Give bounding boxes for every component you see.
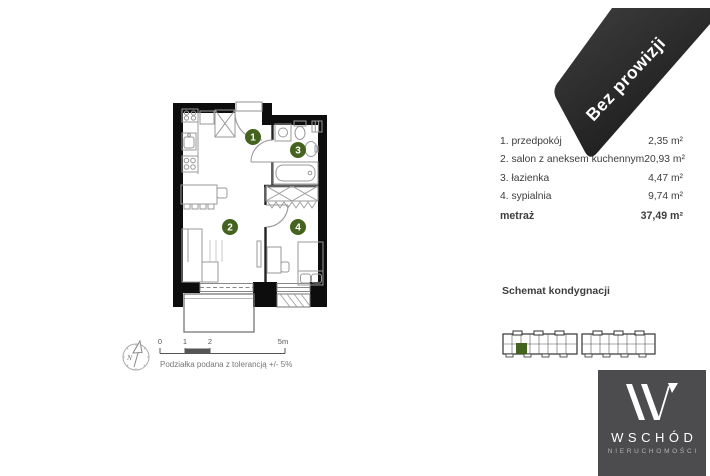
room-2-number: 2 bbox=[227, 223, 233, 234]
legend-row-3-value: 4,47 m² bbox=[648, 170, 683, 188]
bathtub-icon bbox=[273, 162, 318, 184]
entrance-door-leaf bbox=[236, 102, 262, 111]
balcony-hatch bbox=[280, 294, 310, 307]
schematic-title: Schemat kondygnacji bbox=[502, 285, 610, 297]
chair-icon bbox=[281, 262, 289, 272]
legend-total-row: metraż 37,49 m² bbox=[500, 207, 683, 225]
bedroom-furniture bbox=[266, 186, 323, 285]
compass-north-label: N bbox=[126, 353, 133, 362]
company-logo: WSCHÓD NIERUCHOMOŚCI bbox=[598, 370, 706, 476]
sofa-icon bbox=[182, 229, 218, 282]
legend-row-3-label: 3. łazienka bbox=[500, 170, 549, 188]
dining-table-icon bbox=[181, 185, 227, 209]
scale-tick-1: 1 bbox=[183, 337, 187, 346]
listing-floorplan-page: 1 2 3 4 N 0 1 2 5m bbox=[0, 0, 710, 476]
room-3-number: 3 bbox=[295, 146, 301, 157]
washing-machine-icon bbox=[275, 124, 291, 141]
legend-row-3: 3. łazienka 4,47 m² bbox=[500, 170, 683, 188]
floor-plan: 1 2 3 4 N 0 1 2 5m bbox=[0, 0, 400, 400]
legend-row-4-label: 4. sypialnia bbox=[500, 188, 552, 206]
desk-icon bbox=[267, 247, 281, 273]
room-4-number: 4 bbox=[295, 223, 301, 234]
tv-icon bbox=[257, 241, 261, 267]
bedroom-door-arc bbox=[266, 205, 288, 227]
highlighted-unit bbox=[516, 343, 527, 354]
building-left bbox=[503, 331, 577, 357]
livingroom-furniture bbox=[182, 229, 261, 282]
scale-tick-0: 0 bbox=[158, 337, 162, 346]
building-right bbox=[582, 331, 655, 357]
no-commission-ribbon: Bez prowizji bbox=[530, 0, 710, 165]
legend-row-4: 4. sypialnia 9,74 m² bbox=[500, 188, 683, 206]
floor-schematic bbox=[502, 329, 660, 359]
bathroom-sink-icon bbox=[305, 142, 318, 157]
scale-tick-2: 2 bbox=[208, 337, 212, 346]
legend-row-4-value: 9,74 m² bbox=[648, 188, 683, 206]
balconies bbox=[184, 294, 310, 332]
scale-bar: 0 1 2 5m Podziałka podana z tolerancją +… bbox=[158, 337, 292, 369]
kitchen-fixtures bbox=[181, 109, 235, 209]
legend-total-value: 37,49 m² bbox=[641, 207, 683, 225]
bedroom-wardrobe-icon bbox=[266, 186, 318, 208]
logo-w-mark-icon bbox=[598, 376, 706, 426]
room-markers: 1 2 3 4 bbox=[222, 129, 306, 235]
hall-wardrobe-icon bbox=[215, 110, 235, 137]
scale-tick-5m: 5m bbox=[278, 337, 288, 346]
room-1-number: 1 bbox=[250, 133, 256, 144]
logo-title: WSCHÓD bbox=[598, 430, 706, 445]
legend-total-label: metraż bbox=[500, 207, 534, 225]
hob-icon bbox=[182, 156, 198, 172]
balcony bbox=[184, 294, 254, 332]
compass-icon: N bbox=[123, 341, 150, 370]
scale-tolerance-note: Podziałka podana z tolerancją +/- 5% bbox=[160, 360, 292, 369]
rug-icon bbox=[210, 240, 222, 262]
sink-icon bbox=[182, 133, 196, 150]
logo-subtitle: NIERUCHOMOŚCI bbox=[598, 448, 706, 455]
